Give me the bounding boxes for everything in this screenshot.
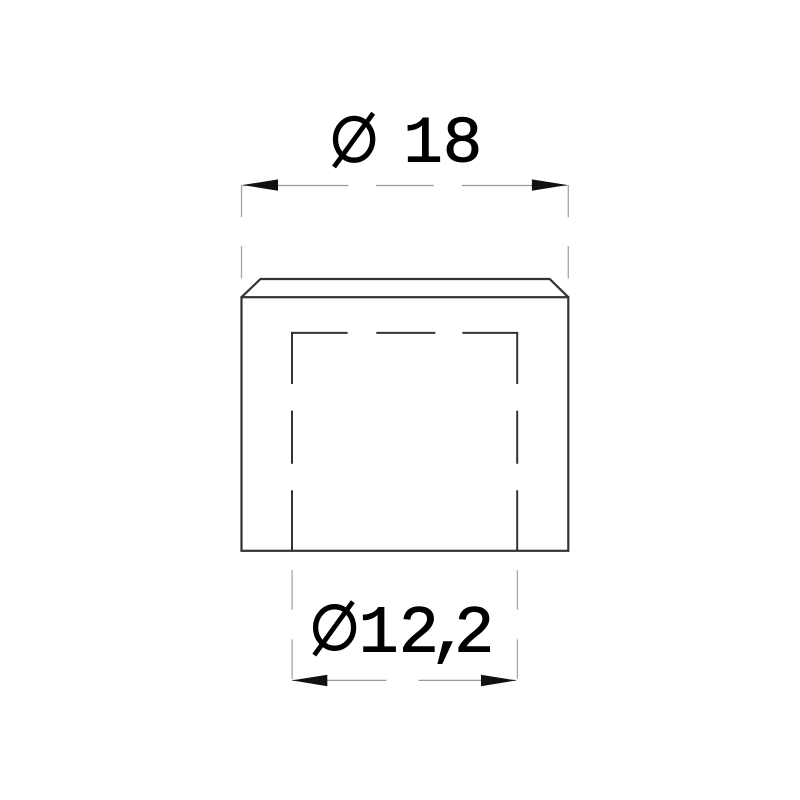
svg-text:12: 12 [359, 597, 439, 673]
svg-text:18: 18 [403, 107, 482, 182]
svg-text:2: 2 [454, 597, 494, 673]
